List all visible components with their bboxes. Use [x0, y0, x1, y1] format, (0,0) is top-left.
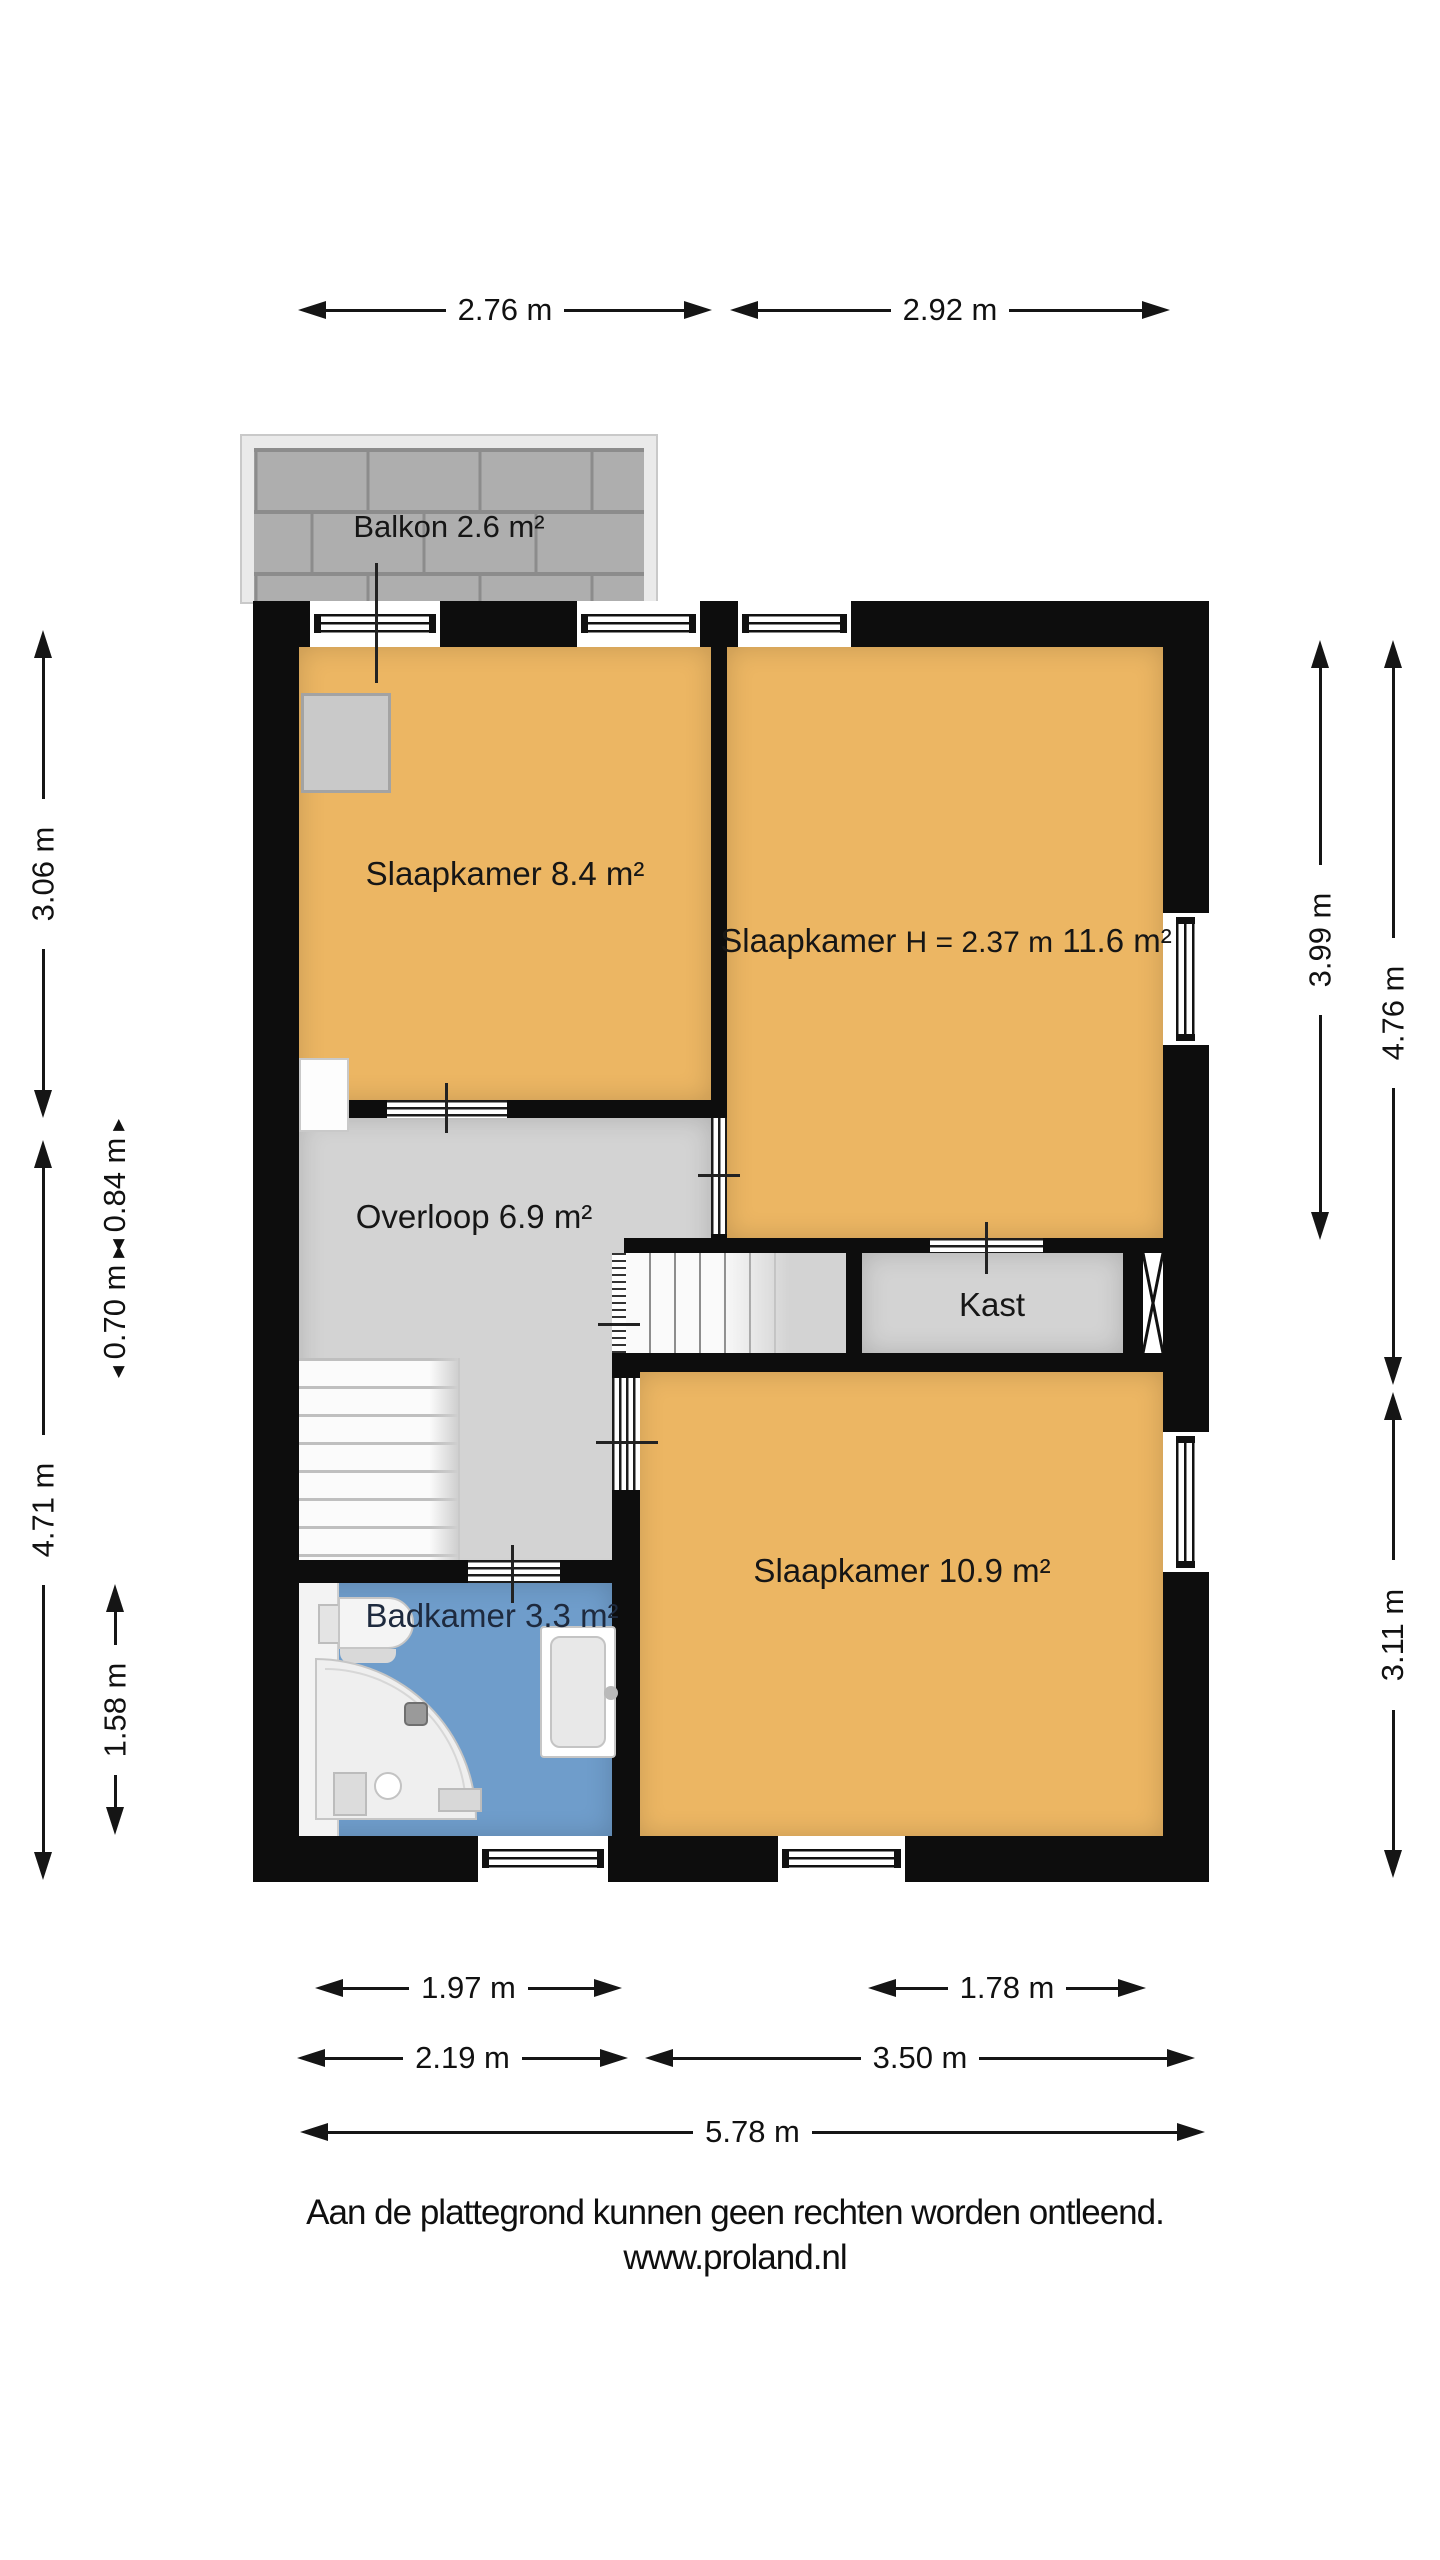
- room-area: 2.6 m²: [457, 509, 545, 544]
- dim-value: 2.19 m: [403, 2040, 522, 2076]
- dim-value: 0.84 m: [97, 1119, 133, 1251]
- door-tick-4: [596, 1441, 658, 1444]
- dim-value: 0.70 m: [97, 1246, 133, 1378]
- wall-kast-right: [1123, 1253, 1143, 1353]
- room-name: Kast: [959, 1286, 1025, 1323]
- balcony-door-tick: [375, 563, 378, 683]
- room-area: 6.9 m²: [499, 1198, 593, 1235]
- dim-value: 1.78 m: [948, 1970, 1067, 2006]
- wall-kast-top: [624, 1238, 1163, 1253]
- wardrobe-icon: [301, 693, 391, 793]
- dim-top-right: 2.92 m: [730, 293, 1170, 327]
- room-area: 11.6 m²: [1062, 922, 1171, 959]
- dim-right-476: 4.76 m: [1376, 640, 1410, 1385]
- dim-bottom-178: 1.78 m: [868, 1971, 1146, 2005]
- dim-value: 5.78 m: [693, 2114, 812, 2150]
- room-name: Slaapkamer: [753, 1552, 929, 1589]
- dim-value: 3.06 m: [15, 827, 71, 922]
- door-slaapkamer-onder: [612, 1378, 640, 1490]
- dim-right-311: 3.11 m: [1376, 1392, 1410, 1878]
- dim-left-158: 1.58 m: [98, 1584, 132, 1835]
- door-tick-1: [445, 1083, 448, 1133]
- shower-drain: [404, 1702, 428, 1726]
- room-name: Slaapkamer: [720, 922, 896, 959]
- dim-top-left: 2.76 m: [298, 293, 712, 327]
- door-tick-5: [511, 1545, 514, 1603]
- label-badkamer: Badkamer 3.3 m²: [365, 1597, 618, 1635]
- disclaimer-line1: Aan de plattegrond kunnen geen rechten w…: [30, 2190, 1440, 2235]
- window-bottom-badkamer: [478, 1836, 608, 1882]
- room-area: 3.3 m²: [525, 1597, 619, 1634]
- window-top-3: [738, 601, 851, 647]
- dim-value: 1.97 m: [409, 1970, 528, 2006]
- room-name: Badkamer: [365, 1597, 515, 1634]
- dim-value: 1.58 m: [87, 1662, 143, 1757]
- floorplan-canvas: Balkon 2.6 m²: [0, 0, 1440, 2560]
- wall-overloop-badkamer: [299, 1560, 612, 1583]
- label-slaapkamer-onder: Slaapkamer 10.9 m²: [753, 1552, 1050, 1590]
- dim-value: 2.92 m: [891, 292, 1010, 328]
- bathtub-faucet: [604, 1686, 618, 1700]
- label-slaapkamer-rechts: Slaapkamer H = 2.37 m 11.6 m²: [720, 922, 1171, 962]
- shower-fitting-3: [438, 1788, 482, 1812]
- shower-fitting-1: [333, 1772, 367, 1816]
- dim-left-471: 4.71 m: [26, 1140, 60, 1880]
- room-height: H = 2.37 m: [906, 926, 1054, 959]
- room-area: 10.9 m²: [939, 1552, 1051, 1589]
- dim-value: 3.50 m: [861, 2040, 980, 2076]
- stairs-tick: [598, 1323, 640, 1326]
- stairs-railing: [612, 1253, 626, 1353]
- room-name: Overloop: [356, 1198, 490, 1235]
- dim-bottom-578: 5.78 m: [300, 2115, 1205, 2149]
- shaft-cross-icon: [1143, 1253, 1163, 1353]
- balcony-label: Balkon 2.6 m²: [353, 508, 544, 546]
- disclaimer-line2: www.proland.nl: [30, 2235, 1440, 2280]
- door-tick-2: [698, 1174, 740, 1177]
- dim-bottom-197: 1.97 m: [315, 1971, 622, 2005]
- wall-kast-left: [846, 1253, 862, 1353]
- dim-value: 4.76 m: [1365, 965, 1421, 1060]
- room-area: 8.4 m²: [551, 855, 645, 892]
- window-right-lower: [1163, 1432, 1209, 1572]
- label-slaapkamer-links: Slaapkamer 8.4 m²: [366, 855, 645, 893]
- door-badkamer: [468, 1560, 560, 1583]
- dim-value: 3.99 m: [1292, 893, 1348, 988]
- wall-kast-bottom: [612, 1353, 1163, 1372]
- room-name: Balkon: [353, 509, 448, 544]
- dim-value: 4.71 m: [15, 1463, 71, 1558]
- dim-value: 2.76 m: [446, 292, 565, 328]
- dim-left-306: 3.06 m: [26, 630, 60, 1118]
- disclaimer: Aan de plattegrond kunnen geen rechten w…: [0, 2190, 1440, 2280]
- dim-bottom-219: 2.19 m: [297, 2041, 628, 2075]
- dim-left-070: 0.70 m: [98, 1237, 132, 1387]
- dim-bottom-350: 3.50 m: [645, 2041, 1195, 2075]
- label-kast: Kast: [959, 1286, 1025, 1324]
- shower-fitting-2: [374, 1772, 402, 1800]
- dim-value: 3.11 m: [1365, 1589, 1421, 1681]
- stairs-main: [299, 1358, 460, 1560]
- window-top-2: [577, 601, 700, 647]
- window-bottom-slaapkamer: [778, 1836, 905, 1882]
- bathtub-icon: [540, 1626, 616, 1758]
- room-name: Slaapkamer: [366, 855, 542, 892]
- door-tick-3: [985, 1222, 988, 1274]
- label-overloop: Overloop 6.9 m²: [356, 1198, 593, 1236]
- dim-right-399: 3.99 m: [1303, 640, 1337, 1240]
- flue-niche: [299, 1058, 349, 1132]
- stairs-upper: [624, 1253, 800, 1353]
